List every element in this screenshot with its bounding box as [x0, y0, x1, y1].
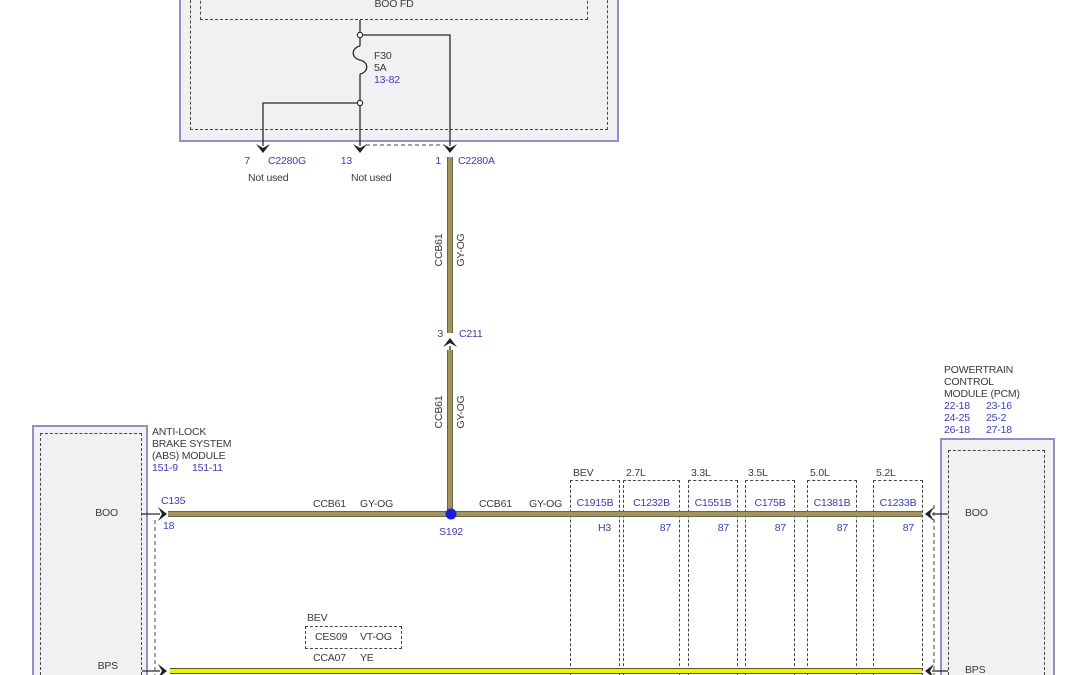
main-wire-color-right: GY-OG — [529, 498, 562, 510]
pin7-arrow-icon — [256, 144, 270, 153]
pcm-ref-r2c1: 24-25 — [944, 412, 970, 424]
engine-variant-label: BEV — [573, 467, 593, 479]
c135-label: C135 — [161, 495, 185, 507]
engine-variant-pin: 87 — [660, 522, 671, 534]
engine-variant-label: 2.7L — [626, 467, 646, 479]
pcm-ref-r3c2: 27-18 — [986, 424, 1012, 436]
pin1-number: 1 — [419, 155, 441, 167]
engine-variant-connector: C1915B — [571, 497, 619, 509]
c211-label: C211 — [459, 328, 483, 340]
engine-variant-connector: C1233B — [874, 497, 922, 509]
engine-variant-box-3-3l: 3.3L C1551B 87 — [688, 480, 738, 675]
engine-variant-pin: H3 — [598, 522, 611, 534]
fusebox-label: BOO FD — [200, 0, 588, 10]
pin13-arrow-icon — [353, 144, 367, 153]
bev-alt-circuit: CES09 — [315, 631, 347, 643]
fuse-rating: 5A — [374, 62, 386, 74]
engine-variant-box-3-5l: 3.5L C175B 87 — [745, 480, 795, 675]
engine-variant-connector: C1381B — [808, 497, 856, 509]
main-wire-color-left: GY-OG — [360, 498, 393, 510]
engine-variant-box-2-7l: 2.7L C1232B 87 — [623, 480, 680, 675]
engine-variant-pin: 87 — [903, 522, 914, 534]
bps-wire-color: YE — [360, 652, 374, 664]
bev-alt-label: BEV — [307, 612, 327, 624]
abs-boo-arrow-icon — [158, 507, 167, 521]
pcm-boo-arrow-icon — [925, 507, 934, 521]
pcm-bps-arrow-icon — [925, 664, 934, 675]
pcm-inner-dashed — [948, 450, 1045, 675]
pcm-ref-r1c1: 22-18 — [944, 400, 970, 412]
engine-variant-connector: C1551B — [689, 497, 737, 509]
engine-variant-box-bev: BEV C1915B H3 — [570, 480, 620, 675]
lower-wire-circuit-label: CCB61 — [433, 376, 445, 448]
main-wire-circuit-left: CCB61 — [313, 498, 346, 510]
pin7-connector: C2280G — [268, 155, 306, 167]
bev-alt-color: VT-OG — [360, 631, 392, 643]
main-wire-circuit-right: CCB61 — [479, 498, 512, 510]
engine-variant-connector: C175B — [746, 497, 794, 509]
pcm-title-line2: CONTROL — [944, 376, 994, 388]
engine-variant-pin: 87 — [718, 522, 729, 534]
fuse-page-ref: 13-82 — [374, 74, 400, 86]
engine-variant-connector: C1232B — [624, 497, 679, 509]
lower-wire-color-label: GY-OG — [455, 376, 467, 448]
pin7-number: 7 — [228, 155, 250, 167]
abs-title-line3: (ABS) MODULE — [152, 450, 225, 462]
bps-wire-circuit: CCA07 — [313, 652, 346, 664]
pcm-ref-r1c2: 23-16 — [986, 400, 1012, 412]
engine-variant-label: 3.3L — [691, 467, 711, 479]
wiring-diagram: BEV C1915B H3 2.7L C1232B 87 3.3L C1551B… — [0, 0, 1080, 675]
abs-title-line2: BRAKE SYSTEM — [152, 438, 231, 450]
engine-variant-box-5-2l: 5.2L C1233B 87 — [873, 480, 923, 675]
wire-ccb61-lower — [447, 350, 453, 512]
pin1-connector: C2280A — [458, 155, 495, 167]
pcm-pin-bps-label: BPS — [965, 664, 985, 675]
engine-variant-label: 3.5L — [748, 467, 768, 479]
fuse-name: F30 — [374, 50, 392, 62]
abs-pin-bps-label: BPS — [78, 660, 118, 672]
engine-variant-pin: 87 — [837, 522, 848, 534]
engine-variant-label: 5.2L — [876, 467, 896, 479]
c135-pin: 18 — [163, 520, 174, 532]
pin1-arrow-icon — [443, 144, 457, 153]
wire-cca07 — [170, 668, 922, 674]
abs-title-line1: ANTI-LOCK — [152, 426, 206, 438]
c211-arrow-icon — [443, 338, 457, 347]
pin13-note: Not used — [351, 172, 391, 184]
engine-variant-label: 5.0L — [810, 467, 830, 479]
pcm-title-line1: POWERTRAIN — [944, 364, 1013, 376]
abs-module-inner-dashed — [40, 433, 142, 675]
abs-bps-arrow-icon — [158, 664, 167, 675]
upper-wire-circuit-label: CCB61 — [433, 214, 445, 286]
wire-ccb61-main — [168, 511, 922, 517]
abs-ref-2: 151-11 — [192, 462, 223, 474]
pcm-ref-r3c1: 26-18 — [944, 424, 970, 436]
wire-ccb61-upper — [447, 157, 453, 333]
splice-label: S192 — [429, 526, 473, 538]
abs-ref-1: 151-9 — [152, 462, 178, 474]
c211-pin: 3 — [421, 328, 443, 340]
pcm-pin-boo-label: BOO — [965, 507, 988, 519]
abs-pin-boo-label: BOO — [78, 507, 118, 519]
pcm-ref-r2c2: 25-2 — [986, 412, 1006, 424]
pcm-title-line3: MODULE (PCM) — [944, 388, 1020, 400]
engine-variant-pin: 87 — [775, 522, 786, 534]
upper-wire-color-label: GY-OG — [455, 214, 467, 286]
engine-variant-box-5-0l: 5.0L C1381B 87 — [807, 480, 857, 675]
pin13-number: 13 — [330, 155, 352, 167]
pin7-note: Not used — [248, 172, 288, 184]
